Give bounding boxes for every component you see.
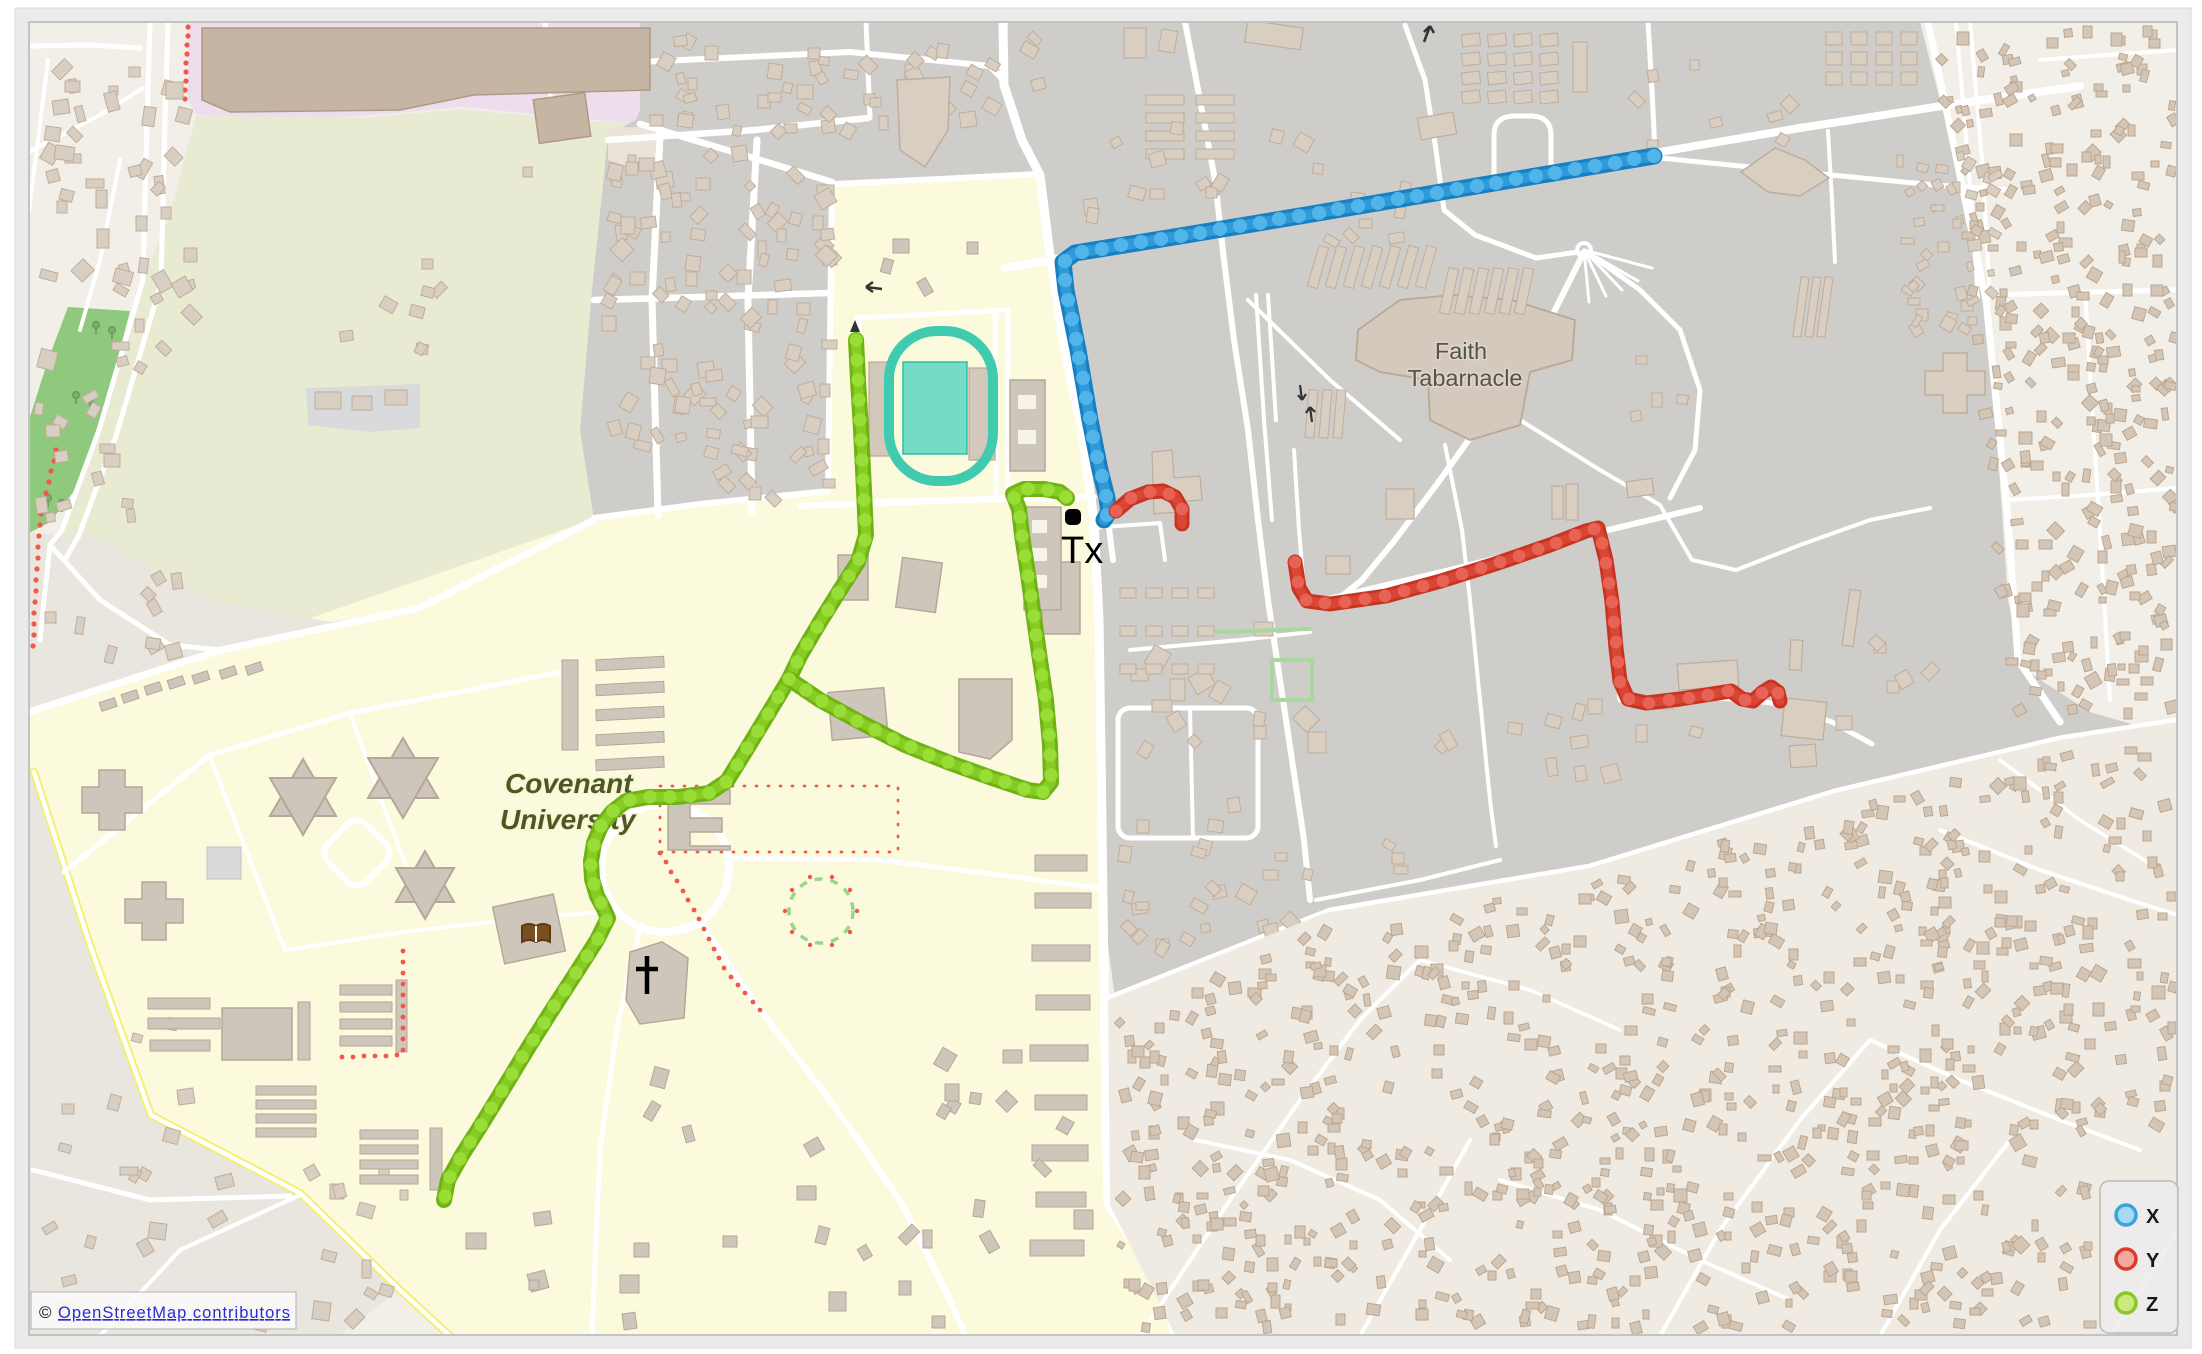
svg-text:Tabarnacle: Tabarnacle bbox=[1408, 365, 1523, 391]
svg-text:Z: Z bbox=[2146, 1294, 2158, 1316]
svg-text:Y: Y bbox=[2146, 1250, 2160, 1272]
svg-text:X: X bbox=[2146, 1206, 2160, 1228]
svg-text:OpenStreetMap contributors: OpenStreetMap contributors bbox=[58, 1304, 290, 1322]
svg-text:Covenant: Covenant bbox=[505, 768, 634, 799]
svg-text:©: © bbox=[39, 1303, 52, 1322]
svg-text:Tx: Tx bbox=[1061, 530, 1103, 572]
svg-text:Faith: Faith bbox=[1435, 338, 1487, 364]
